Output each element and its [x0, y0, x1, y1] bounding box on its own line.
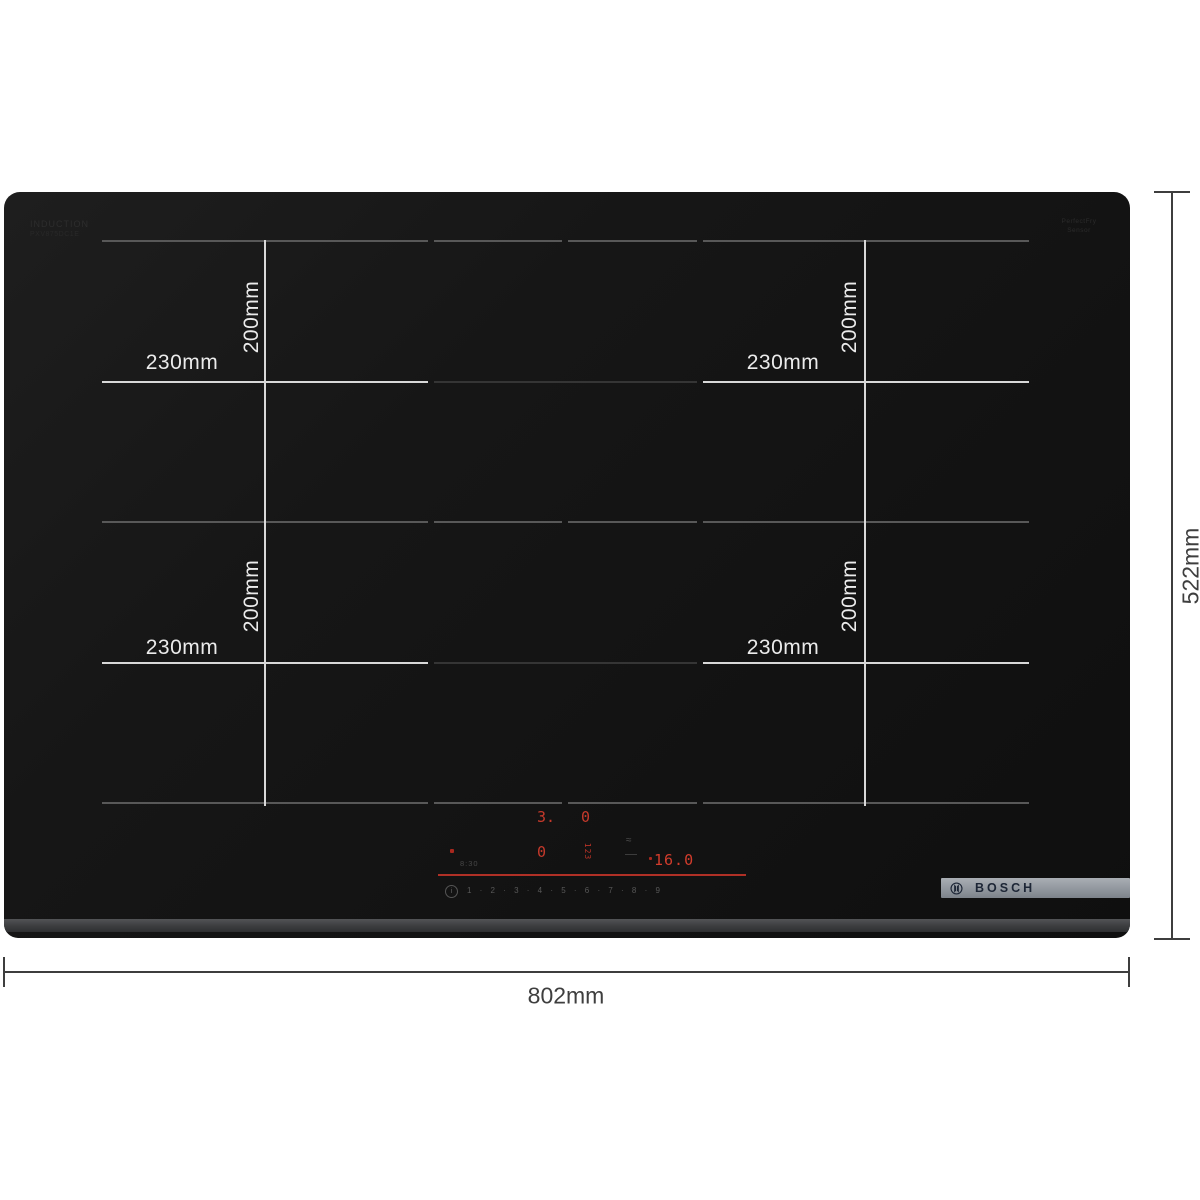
zone-width-label-bottom-left: 230mm: [146, 636, 219, 660]
zone-line-mid-right: [703, 521, 1029, 523]
product-dimension-diagram: INDUCTION PXV875DC1E PerfectFry Sensor: [0, 0, 1200, 1200]
display-digit-lower-left: 0: [537, 843, 546, 861]
zone-width-dim-line-top-mid: [434, 381, 697, 383]
zone-height-label-top-right: 200mm: [838, 281, 862, 354]
zone-height-dim-line-right: [864, 240, 866, 806]
frying-sensor-icon: ≈: [626, 835, 632, 846]
power-indicator-icon: [450, 849, 454, 853]
display-timer-value: 16.0: [654, 851, 694, 869]
display-side-digits: 123: [583, 843, 592, 860]
bosch-logo: BOSCH: [975, 881, 1035, 895]
glass-print-top-right: PerfectFry Sensor: [1050, 218, 1108, 236]
zone-line-mid-midleft: [434, 521, 562, 523]
info-icon-glyph: i: [451, 888, 453, 895]
zone-width-dim-line-bottom-right: [703, 662, 1029, 664]
zone-width-label-bottom-right: 230mm: [747, 636, 820, 660]
timer-dot-icon: [649, 857, 652, 860]
glass-print-top-left-line1: INDUCTION: [30, 218, 89, 230]
height-dimension-cap-top: [1154, 191, 1190, 193]
glass-print-top-left: INDUCTION PXV875DC1E: [30, 218, 89, 240]
height-dimension-line: [1171, 192, 1173, 940]
zone-height-dim-line-left: [264, 240, 266, 806]
bosch-badge: BOSCH: [941, 878, 1130, 898]
zone-width-dim-line-bottom-mid: [434, 662, 697, 664]
glass-print-top-right-line2: Sensor: [1050, 227, 1108, 236]
zone-width-dim-line-top-right: [703, 381, 1029, 383]
width-dimension-cap-left: [3, 957, 5, 987]
width-dimension-label: 802mm: [528, 983, 605, 1010]
zone-line-top-midleft: [434, 240, 562, 242]
info-circle-icon: i: [445, 885, 458, 898]
directselect-red-line: [438, 874, 746, 876]
glass-print-top-left-line2: PXV875DC1E: [30, 230, 89, 239]
display-digit-upper-left: 3.: [537, 808, 555, 826]
zone-line-bottom-midleft: [434, 802, 562, 804]
induction-hob-glass: INDUCTION PXV875DC1E PerfectFry Sensor: [4, 192, 1130, 938]
zone-width-label-top-left: 230mm: [146, 351, 219, 375]
zone-line-bottom-right: [703, 802, 1029, 804]
display-clock: 8:30: [460, 859, 479, 868]
bosch-symbol-icon: [950, 882, 963, 895]
width-dimension-cap-right: [1128, 957, 1130, 987]
zone-height-label-bottom-left: 200mm: [240, 560, 264, 633]
power-level-scale: 1 · 2 · 3 · 4 · 5 · 6 · 7 · 8 · 9: [467, 886, 663, 895]
width-dimension-line: [3, 971, 1130, 973]
height-dimension-cap-bottom: [1154, 938, 1190, 940]
zone-line-top-right: [703, 240, 1029, 242]
zone-height-label-top-left: 200mm: [240, 281, 264, 354]
zone-line-bottom-midright: [568, 802, 697, 804]
zone-line-top-midright: [568, 240, 697, 242]
display-digit-upper-right: 0: [581, 808, 590, 826]
glass-print-top-right-line1: PerfectFry: [1050, 218, 1108, 227]
front-bezel: [4, 919, 1130, 932]
sensor-dashes-icon: [625, 854, 637, 855]
zone-height-label-bottom-right: 200mm: [838, 560, 862, 633]
zone-width-label-top-right: 230mm: [747, 351, 820, 375]
height-dimension-label: 522mm: [1178, 528, 1200, 605]
zone-line-mid-midright: [568, 521, 697, 523]
